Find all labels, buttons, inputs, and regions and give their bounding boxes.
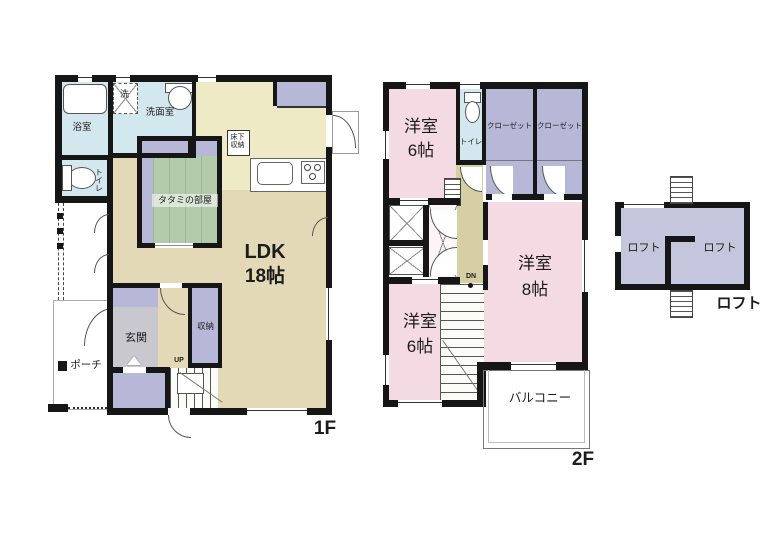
burner — [304, 164, 311, 171]
closet-xbox — [389, 247, 425, 275]
window — [400, 198, 428, 205]
label-underfloor: 床下収納 — [228, 132, 247, 152]
floor-plan: 浴室 洗 洗面室 トイレ タタミの部屋 床下収納 LDK 18帖 玄関 収納 U… — [0, 0, 777, 549]
window — [624, 202, 664, 208]
wall — [108, 82, 113, 156]
closet-xbox — [389, 205, 425, 242]
wall — [217, 136, 222, 248]
label-ldk-size: 18帖 — [235, 266, 295, 288]
wall — [218, 288, 222, 368]
wall — [192, 82, 196, 158]
label-closet-right: クローゼット — [537, 121, 582, 132]
door-opening — [492, 194, 512, 200]
door-opening — [544, 194, 564, 200]
window — [412, 277, 438, 284]
toilet-bowl-2f — [465, 101, 480, 123]
wall — [482, 89, 486, 165]
label-western-top-size: 6帖 — [391, 141, 451, 161]
door-opening — [168, 408, 190, 415]
wall — [533, 89, 537, 198]
stair-post — [468, 283, 473, 288]
label-toilet-1f: トイレ — [93, 164, 103, 196]
toilet-bowl-1f — [68, 167, 96, 189]
label-western-bottom-size: 6帖 — [390, 337, 450, 357]
label-balcony: バルコニー — [508, 392, 572, 406]
window — [460, 82, 480, 89]
wall-partition-stub — [665, 236, 695, 242]
label-loft-right: ロフト — [704, 241, 736, 255]
wall-left-annex — [55, 75, 62, 203]
label-up: UP — [170, 356, 188, 366]
window — [383, 131, 389, 159]
label-porch: ポーチ — [68, 359, 104, 372]
window-arc — [94, 254, 109, 273]
wall — [108, 153, 196, 158]
door-opening — [155, 243, 193, 248]
wall — [273, 80, 277, 106]
bathtub — [63, 84, 107, 114]
label-floor1: 1F — [310, 418, 340, 440]
shoe-closet — [113, 288, 158, 308]
label-ldk: LDK — [235, 241, 295, 263]
closet-under-stairs — [113, 373, 165, 408]
dotted-line — [68, 407, 107, 409]
label-floor2: 2F — [568, 449, 598, 471]
loft-ladder-top — [670, 176, 693, 204]
label-storage-1f: 収納 — [196, 321, 215, 333]
burner — [309, 173, 316, 180]
label-closet-left: クローゼット — [487, 121, 532, 132]
loft-ladder-bottom — [670, 290, 693, 318]
closet-line — [277, 106, 326, 108]
toilet-tank-1f — [62, 165, 72, 191]
window — [615, 236, 621, 252]
wall — [389, 240, 423, 246]
wall-right — [582, 82, 588, 370]
wall — [48, 404, 68, 412]
label-dn: DN — [462, 272, 480, 282]
label-western-bottom: 洋室 — [390, 312, 450, 332]
label-toilet-2f: トイレ — [461, 137, 481, 148]
wall-partition — [665, 241, 671, 290]
label-entrance: 玄関 — [116, 331, 156, 345]
window — [582, 240, 588, 292]
wall-top — [55, 75, 332, 82]
label-washroom: 洗面室 — [138, 107, 182, 119]
kitchen-sink — [257, 162, 293, 185]
window — [398, 400, 442, 407]
window — [247, 408, 307, 415]
wall — [456, 160, 486, 165]
label-western-right-size: 8帖 — [505, 280, 565, 300]
window — [198, 75, 216, 82]
window — [406, 82, 430, 89]
window — [116, 75, 130, 82]
label-bath: 浴室 — [67, 122, 97, 134]
wall-left-main — [107, 158, 113, 415]
wall-right — [744, 202, 750, 290]
wall — [55, 155, 113, 160]
eave-dash — [57, 213, 63, 219]
eave-dash — [57, 243, 63, 249]
window — [383, 355, 389, 385]
window-arc — [94, 214, 109, 233]
stairs-landing — [177, 373, 204, 394]
label-loft-left: ロフト — [628, 241, 660, 255]
label-washer: 洗 — [117, 89, 132, 101]
closet-top-right — [277, 80, 326, 106]
burner — [314, 164, 321, 171]
label-loft: ロフト — [718, 295, 760, 313]
wall-annex-bottom — [55, 196, 113, 203]
wall — [456, 89, 460, 165]
door-arc — [168, 415, 191, 438]
eave-dash — [57, 228, 63, 234]
label-tatami: タタミの部屋 — [152, 194, 218, 207]
door-opening — [483, 240, 488, 265]
label-western-right: 洋室 — [505, 254, 565, 274]
window — [326, 288, 332, 340]
window — [511, 362, 556, 370]
window — [78, 75, 92, 82]
step-mark — [127, 356, 141, 365]
balcony-inner-line — [488, 370, 585, 443]
label-western-top: 洋室 — [391, 117, 451, 137]
porch-post — [58, 361, 67, 371]
